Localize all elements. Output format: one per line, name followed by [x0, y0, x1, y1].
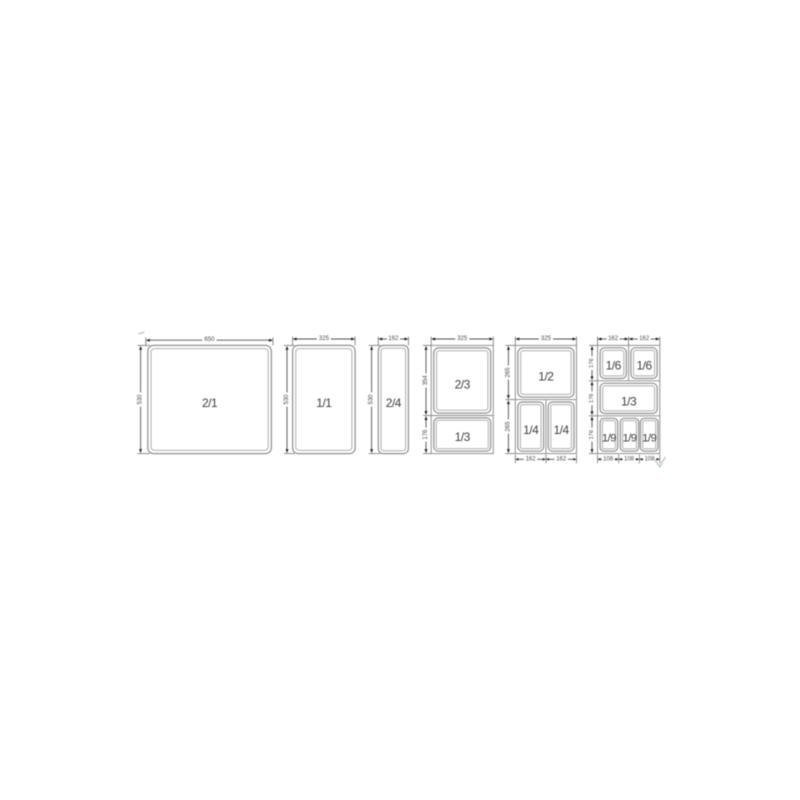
svg-text:1/6: 1/6 [606, 358, 622, 372]
svg-text:162: 162 [526, 456, 537, 462]
svg-text:162: 162 [608, 336, 619, 342]
svg-text:650: 650 [204, 337, 215, 343]
svg-text:176: 176 [589, 430, 595, 440]
svg-text:1/3: 1/3 [455, 430, 471, 444]
svg-text:108: 108 [603, 456, 614, 462]
svg-text:530: 530 [138, 394, 144, 405]
svg-text:530: 530 [369, 394, 375, 405]
svg-text:265: 265 [505, 367, 511, 378]
svg-text:162: 162 [388, 336, 399, 342]
svg-text:1/9: 1/9 [622, 432, 636, 444]
svg-text:354: 354 [423, 375, 429, 386]
svg-text:325: 325 [319, 336, 330, 342]
svg-text:2/4: 2/4 [386, 396, 402, 410]
svg-text:325: 325 [541, 336, 552, 342]
svg-text:108: 108 [624, 456, 635, 462]
svg-text:1/9: 1/9 [602, 432, 616, 444]
svg-text:2/3: 2/3 [455, 378, 471, 392]
svg-text:2/1: 2/1 [202, 396, 218, 410]
svg-text:1/4: 1/4 [523, 423, 539, 437]
svg-text:162: 162 [639, 336, 650, 342]
svg-text:1/1: 1/1 [316, 396, 332, 410]
svg-text:325: 325 [457, 336, 468, 342]
svg-text:108: 108 [645, 456, 656, 462]
svg-text:530: 530 [284, 394, 290, 405]
svg-text:1/2: 1/2 [538, 370, 554, 384]
svg-text:1/3: 1/3 [621, 395, 637, 409]
svg-text:265: 265 [505, 421, 511, 432]
svg-text:1/4: 1/4 [554, 423, 570, 437]
svg-text:176: 176 [589, 393, 595, 403]
svg-text:176: 176 [589, 358, 595, 368]
svg-text:1/6: 1/6 [637, 358, 653, 372]
svg-text:1/9: 1/9 [642, 432, 656, 444]
svg-text:176: 176 [423, 429, 429, 440]
svg-text:162: 162 [556, 456, 567, 462]
